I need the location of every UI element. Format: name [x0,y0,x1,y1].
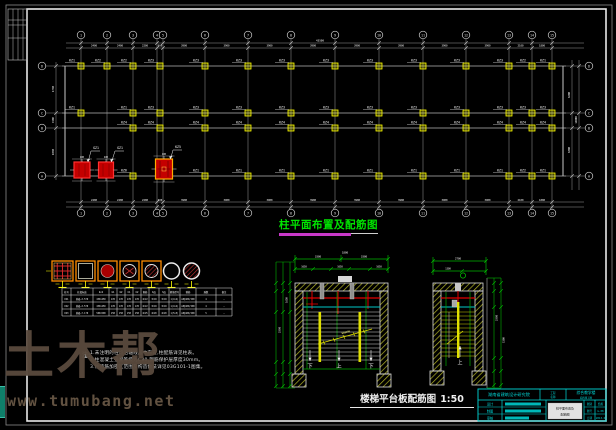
column-label: KZ4 [454,120,460,124]
watermark-logo: 土木帮 [4,331,163,381]
flow-arrow-head [308,358,311,361]
dim-text: 3900 [181,198,188,202]
column-marker [376,63,382,69]
plan-title: 柱平面布置及配筋图 [279,217,378,234]
schedule-header: 箍筋型号 [170,290,180,294]
flow-label: 下 [307,363,313,370]
title-block-mini: 图别 [587,402,593,406]
column-marker [78,63,84,69]
schedule-header: b×h [99,291,104,294]
dim-text: 2100 [517,198,524,202]
dim-text: 2400 [117,198,124,202]
detail-bubble [460,273,465,278]
schedule-cell: 250 [111,312,116,315]
dim-text: 3900 [398,198,405,202]
column-label: KZ3 [193,105,199,109]
grid-bubble-label: 8 [290,33,292,37]
column-marker [332,63,338,69]
dim-text: 3300 [315,254,322,258]
signature-mark [505,417,529,420]
grid-bubble-label: 2 [106,211,108,215]
title-block-role: 审核 [487,415,494,420]
column-marker [332,173,338,179]
watermark-accent-bar [0,386,5,418]
column-label: KZ2 [520,168,526,172]
column-label: KZ3 [367,105,373,109]
schedule-cell: 4 [205,298,207,301]
schedule-header: 柱段标高 [77,290,87,294]
column-marker [420,110,426,116]
grid-bubble-label: 11 [421,211,425,215]
column-marker [420,125,426,131]
schedule-cell: 3C18 [161,305,167,308]
stair-wall [292,374,306,387]
dim-text: 2400 [91,44,98,48]
column-marker [130,63,136,69]
column-marker [130,173,136,179]
dim-text: 2400 [91,198,98,202]
schedule-cell: 225 [119,305,124,308]
column-label: KZ3 [236,58,242,62]
cad-sheet: 1122334455667788991010111112121313141415… [0,0,616,430]
schedule-cell: 基础~7.170 [76,311,89,315]
dim-text: 600 [158,44,163,48]
dim-text: 1650 [337,265,343,268]
grid-bubble-label: 4 [156,33,158,37]
grid-bubble-label: 3 [132,211,134,215]
dim-text: 1800 [539,198,546,202]
stair-wall [430,371,444,385]
schedule-cell: 4C25 [142,312,148,315]
schedule-cell: 225 [111,305,116,308]
stair-stringer [359,312,362,362]
column-marker [529,125,535,131]
dim-text: 3900 [484,198,491,202]
schedule-cell: KZ3 [65,312,70,315]
red-column-label: GZ1 [117,146,123,150]
column-marker [463,173,469,179]
schedule-header: 肢数 [204,290,209,294]
column-marker [288,63,294,69]
dim-text: 400 [80,156,85,159]
grid-bubble-label: A [41,174,43,178]
grid-bubble-label: 6 [204,33,206,37]
column-label: KZ2 [121,58,127,62]
dim-text: 3300 [495,314,499,321]
column-marker [506,125,512,131]
stair-wall [377,374,391,387]
grid-bubble-label: C [588,111,590,115]
grid-bubble-label: 5 [162,33,164,37]
dim-text: 400 [104,156,109,159]
title-block-mini: 日期 [587,416,593,420]
title-block-project-sub: 结构施工图 [580,396,593,400]
column-label: KZ3 [323,105,329,109]
column-label: KZ4 [540,120,546,124]
column-marker [288,110,294,116]
grid-bubble-label: 12 [464,211,468,215]
column-marker [130,125,136,131]
section-circle [164,263,180,279]
stamp-text: 配筋图 [560,412,569,417]
schedule-cell: 225 [111,298,116,301]
schedule-cell: A8@100/200 [181,305,195,308]
flow-label: 上 [457,359,462,366]
section-circle [184,263,200,279]
dim-text: 4800 [51,148,55,155]
dim-text: 2200 [142,198,149,202]
break-line [447,331,463,344]
stair-wall [295,283,388,291]
stamp-text: 柱平面布置及 [556,406,574,411]
dim-text: 3900 [398,44,405,48]
signature-mark [505,410,541,413]
title-block-role: 设计 [487,401,494,406]
stair-stringer [457,302,459,358]
column-marker [529,173,535,179]
dim-text: 2200 [142,44,149,48]
grid-bubble-label: 14 [530,33,534,37]
grid-bubble-label: 13 [507,33,511,37]
column-label: KZ3 [323,58,329,62]
column-label: KZ1 [540,58,546,62]
grid-bubble-label: 11 [421,33,425,37]
column-marker [202,63,208,69]
schedule-cell: 4C22 [142,298,148,301]
column-label: KZ3 [411,58,417,62]
column-marker [506,63,512,69]
schedule-header: h边 [162,290,166,294]
schedule-header: 角筋 [143,290,148,294]
grid-bubble-label: 10 [377,33,381,37]
column-label: KZ3 [279,58,285,62]
schedule-cell: 500×500 [96,312,106,315]
grid-bubble-label: A [588,174,590,178]
schedule-cell: 基础~3.570 [76,304,89,308]
schedule-cell: 4 [205,305,207,308]
schedule-cell: 250 [135,312,140,315]
column-marker [549,173,555,179]
schedule-cell: 3C18 [151,305,157,308]
column-label: KZ3 [520,105,526,109]
column-label: KZ4 [236,120,242,124]
column-label: KZ3 [236,105,242,109]
column-label: KZ4 [497,120,503,124]
grid-bubble-label: 5 [162,211,164,215]
schedule-cell: 1(4×4) [171,305,179,308]
grid-bubble-label: 13 [507,211,511,215]
schedule-cell: 4C20 [161,312,167,315]
column-marker [506,173,512,179]
slab-label-box [338,276,352,282]
plan-title-underline [279,233,351,236]
watermark-url: www.tumubang.net [7,392,176,410]
dim-text: 3900 [484,44,491,48]
grid-bubble-label: 14 [530,211,534,215]
grid-bubble-label: 9 [334,33,336,37]
stair-wall [472,371,486,385]
dim-text: 600 [158,198,163,202]
dim-text: 6300 [567,147,571,154]
dim-text: 14000 [574,116,578,124]
grid-bubble-label: 7 [247,33,249,37]
column-label: KZ6 [121,168,127,172]
dim-text: 2400 [117,44,124,48]
column-marker [245,125,251,131]
grid-bubble-label: 2 [106,33,108,37]
grid-bubble-label: 4 [156,211,158,215]
schedule-cell: — [223,298,225,301]
schedule-header: h1 [128,291,131,294]
grid-bubble-label: C [41,111,43,115]
column-label: KZ3 [454,105,460,109]
red-column-label: GZ1 [93,146,99,150]
column-marker [420,173,426,179]
column-marker [529,63,535,69]
column-label: KZ4 [193,120,199,124]
column-marker [529,110,535,116]
column-label: KZ1 [411,168,417,172]
title-block-role: 制图 [487,408,493,413]
schedule-header: b边 [152,290,156,294]
column-label: KZ2 [95,58,101,62]
column-label: KZ4 [279,120,285,124]
schedule-header: h2 [136,291,139,294]
schedule-cell: 250 [119,312,124,315]
stair-post [455,283,461,291]
column-marker [245,63,251,69]
column-marker [245,110,251,116]
dim-text: 3300 [361,254,368,258]
column-label: KZ4 [148,120,154,124]
stair-caption: 楼梯平台板配筋图1:50 [350,391,474,408]
schedule-cell: 5 [205,312,207,315]
title-block-label: 工程 [550,391,556,395]
column-marker [130,110,136,116]
schedule-cell: 3C18 [151,298,157,301]
column-label: KZ3 [148,105,154,109]
grid-bubble-label: B [41,126,43,130]
grid-bubble-label: 8 [290,211,292,215]
column-label: KZ1 [121,105,127,109]
column-label: KZ3 [497,58,503,62]
column-label: KZ4 [520,120,526,124]
column-label: KZ4 [121,120,127,124]
title-block-org: 湖南省建筑设计研究院 [488,391,531,398]
grid-bubble-label: 9 [334,211,336,215]
schedule-cell: 4C22 [142,305,148,308]
grid-bubble-label: 1 [80,211,82,215]
schedule-cell: 225 [127,298,132,301]
column-label: KZ3 [454,58,460,62]
dim-text: 1500 [52,117,55,123]
rebar-note: B8@200 [341,330,351,335]
flow-label: 下 [368,363,374,370]
schedule-cell: A8@100/200 [181,312,195,315]
column-marker [157,110,163,116]
grid-bubble-label: 1 [80,33,82,37]
column-marker [157,125,163,131]
column-label: KZ4 [367,120,373,124]
column-label: KZ1 [454,168,460,172]
section-circle [101,265,114,278]
grid-bubble-label: D [41,64,43,68]
dim-text: 1800 [539,44,546,48]
grid-bubble-label: 15 [550,211,554,215]
schedule-cell: KZ1 [65,298,70,301]
dim-text: 3900 [441,198,448,202]
schedule-cell: 4C20 [151,312,157,315]
stair-post [320,283,324,299]
dim-text: 3900 [223,198,230,202]
grid-bubble-label: D [588,64,590,68]
stair-post [452,300,457,307]
column-label: KZ1 [236,168,242,172]
stair-wall [295,291,303,374]
column-label: KZ1 [323,168,329,172]
column-marker [549,110,555,116]
column-label: KZ1 [279,168,285,172]
signature-mark [505,403,541,406]
stair-wall [475,291,483,371]
column-marker [245,173,251,179]
column-label: KZ3 [148,58,154,62]
dim-text: 6200 [567,92,571,99]
schedule-cell: 225 [119,298,124,301]
dim-text: 3900 [181,44,188,48]
dim-text: 3900 [354,44,361,48]
column-marker [463,110,469,116]
column-label: KZ3 [193,58,199,62]
red-column-label: KZ5 [175,145,181,149]
flow-arrow-head [369,358,372,361]
stair-wall [433,291,441,371]
column-label: KZ1 [69,58,75,62]
dim-text: 3900 [441,44,448,48]
grid-bubble-label: 6 [204,211,206,215]
schedule-header: 备注 [222,290,227,294]
schedule-header: b2 [120,291,123,294]
column-label: KZ2 [520,58,526,62]
column-marker [332,125,338,131]
column-marker [549,125,555,131]
column-label: KZ3 [497,105,503,109]
schedule-cell: 225 [135,305,140,308]
dim-text: 4700 [51,85,55,92]
column-marker [376,110,382,116]
section-inner [79,264,93,279]
column-marker [376,125,382,131]
schedule-cell: 1(5×5) [171,312,179,315]
grid-bubble-label: B [588,126,590,130]
column-marker [202,125,208,131]
schedule-cell: A8@100/200 [181,298,195,301]
column-marker [202,110,208,116]
column-label: KZ1 [497,168,503,172]
schedule-cell: — [223,312,225,315]
column-marker [420,63,426,69]
grid-bubble-label: 10 [377,211,381,215]
dim-text: 1500 [502,337,505,343]
grid-bubble-label: 3 [132,33,134,37]
frame-column-highlight [99,162,114,178]
frame-column-highlight [74,162,90,178]
column-label: KZ3 [540,105,546,109]
stair-post [350,283,354,299]
schedule-cell: 225 [135,298,140,301]
column-marker [78,110,84,116]
title-block-mini: 结施 [598,402,604,406]
column-label: KZ1 [193,168,199,172]
stair-wall [380,291,388,374]
column-marker [288,173,294,179]
stair-caption-scale: 1:50 [440,394,464,405]
dim-text: 2700 [455,256,462,260]
schedule-header: b1 [112,291,115,294]
schedule-cell: 250 [127,312,132,315]
dim-text: 3300 [278,326,282,333]
column-marker [157,63,163,69]
column-marker [288,125,294,131]
column-label: KZ3 [367,58,373,62]
schedule-cell: 450×450 [96,298,106,301]
column-marker [332,110,338,116]
dim-text: 3900 [310,198,317,202]
column-label: KZ1 [367,168,373,172]
dim-text: 3900 [266,198,273,202]
title-block-mini: 2013.6 [596,416,606,420]
column-label: KZ1 [69,105,75,109]
title-block-mini: G-08 [597,409,604,413]
schedule-header: 柱号 [64,290,69,294]
dim-text: 1650 [301,265,307,268]
dim-text-total: 43500 [316,39,324,43]
stair-caption-text: 楼梯平台板配筋图 [360,394,436,405]
dim-text: 3900 [266,44,273,48]
column-label: KZ4 [411,120,417,124]
grid-bubble-label: 7 [247,211,249,215]
column-label: KZ4 [323,120,329,124]
dim-text: 2100 [517,44,524,48]
signature-strip [8,9,27,60]
column-marker [104,63,110,69]
column-label: KZ3 [411,105,417,109]
schedule-cell: KZ2 [65,305,70,308]
grid-bubble-label: 12 [464,33,468,37]
title-block-project: 综合教学楼 [577,390,596,395]
schedule-cell: — [223,305,225,308]
column-marker [463,63,469,69]
schedule-cell: 225 [127,305,132,308]
schedule-cell: 1(4×4) [171,298,179,301]
title-block-mini: 图号 [587,409,593,413]
schedule-cell: 基础~3.570 [76,297,89,301]
schedule-header: 箍筋 [186,290,191,294]
grid-bubble-label: 15 [550,33,554,37]
dim-text: 1650 [286,297,289,303]
dim-text: 3900 [223,44,230,48]
column-label: KZ1 [540,168,546,172]
title-block-label: 名称 [550,395,556,399]
dim-text: 400 [162,153,167,156]
stamp-box [548,403,582,419]
dim-text: 3900 [310,44,317,48]
column-marker [463,125,469,131]
column-label: KZ3 [279,105,285,109]
dim-text: 3900 [354,198,361,202]
section-circle [145,265,158,278]
schedule-cell: 3C18 [161,298,167,301]
